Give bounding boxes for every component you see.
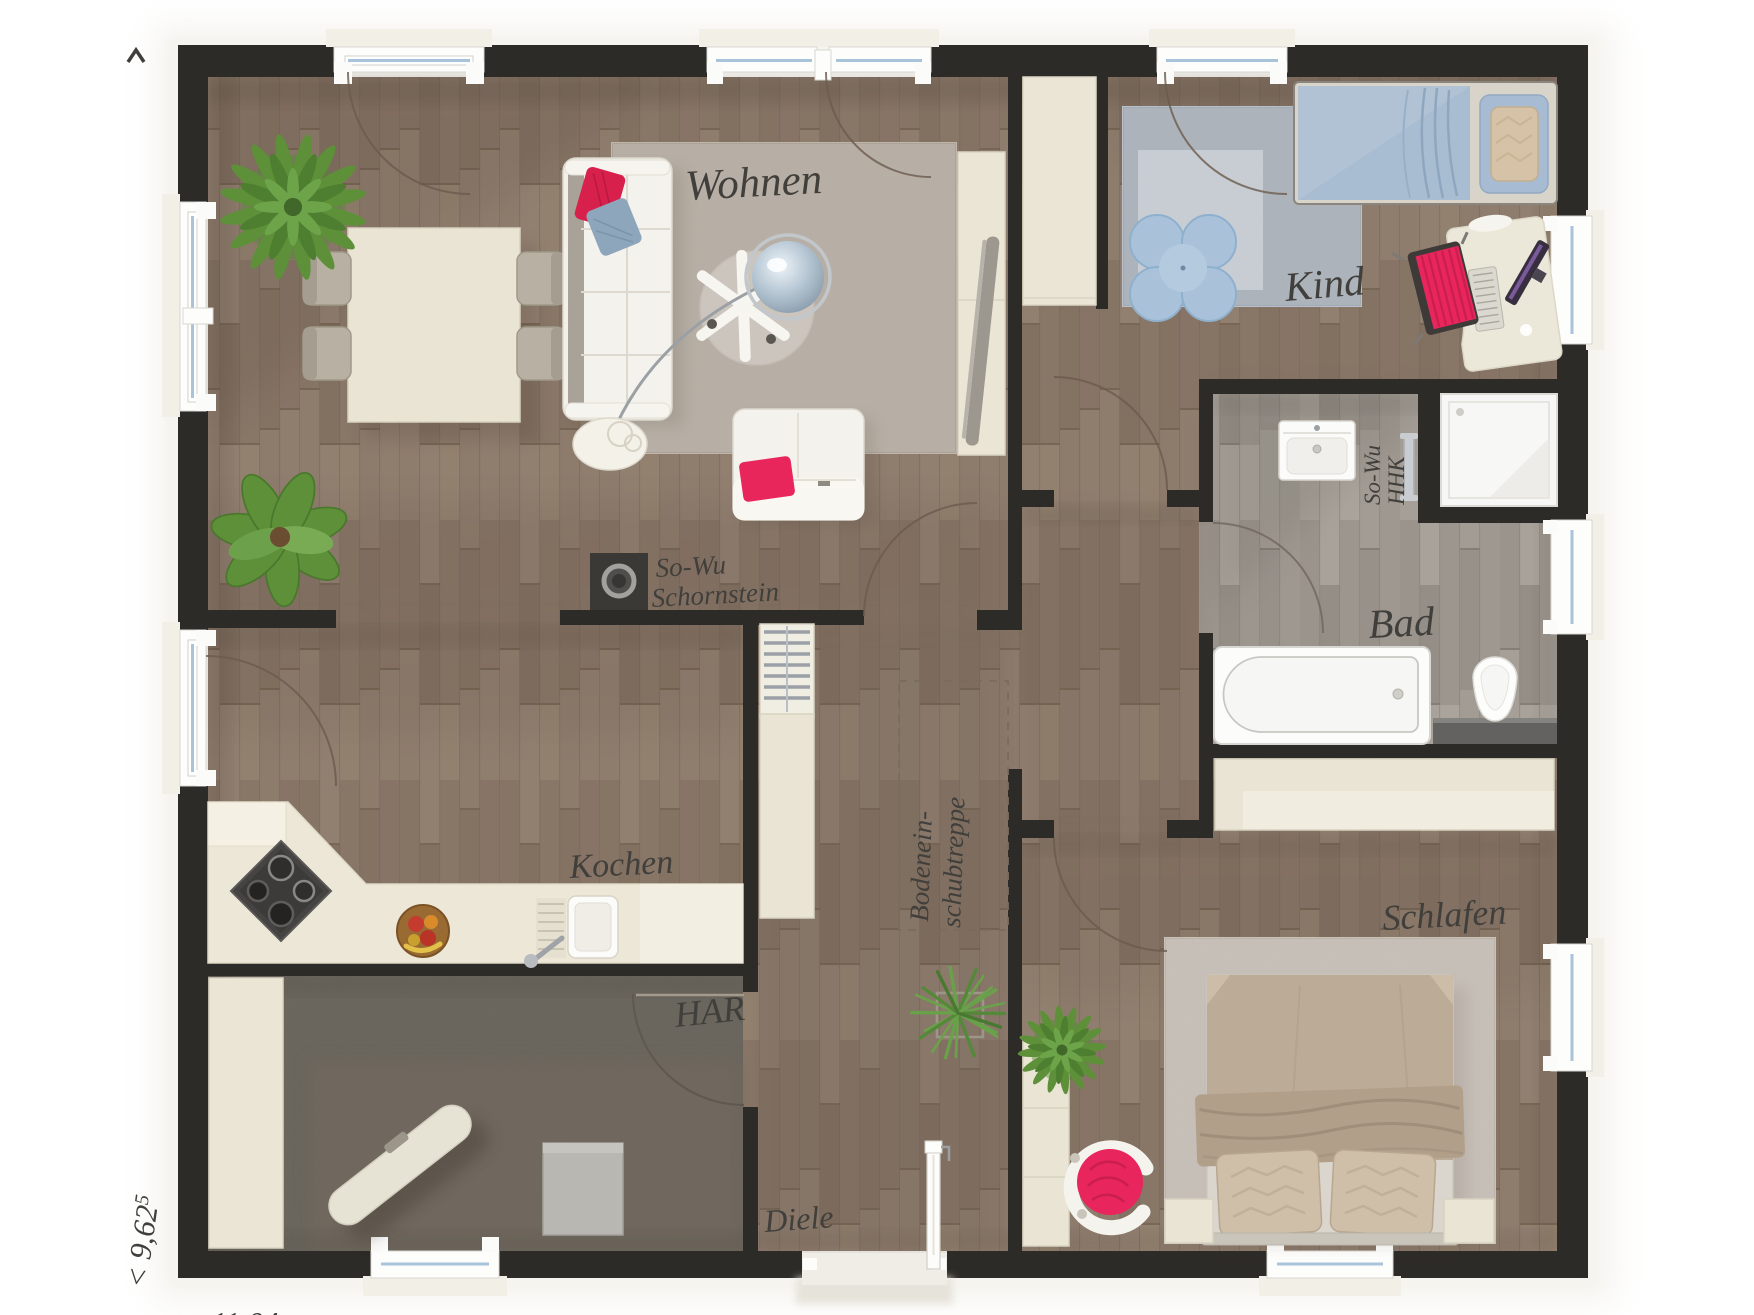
svg-text:Schlafen: Schlafen xyxy=(1381,892,1507,938)
svg-text:So-Wu: So-Wu xyxy=(1360,445,1385,505)
svg-text:HHK: HHK xyxy=(1384,455,1409,506)
svg-text:HAR: HAR xyxy=(672,988,747,1035)
svg-text:Bad: Bad xyxy=(1367,598,1436,647)
svg-text:Bodenein-: Bodenein- xyxy=(904,810,938,922)
svg-text:Wohnen: Wohnen xyxy=(684,156,823,210)
svg-text:Kochen: Kochen xyxy=(567,844,674,886)
svg-text:schubtreppe: schubtreppe xyxy=(936,796,971,928)
svg-text:So-Wu: So-Wu xyxy=(655,549,727,583)
svg-text:11,04: 11,04 xyxy=(211,1305,278,1315)
svg-text:Diele: Diele xyxy=(762,1198,835,1239)
svg-text:Kind: Kind xyxy=(1282,257,1367,310)
